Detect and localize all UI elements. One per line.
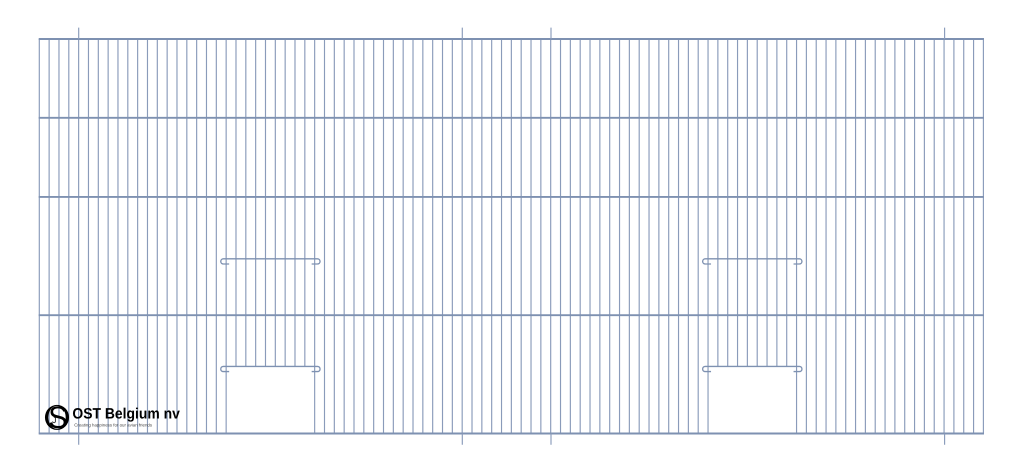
svg-text:Creating happiness for our avi: Creating happiness for our avian friends <box>74 422 153 427</box>
svg-text:J: J <box>52 415 56 425</box>
svg-text:OST Belgium nv: OST Belgium nv <box>72 406 180 423</box>
